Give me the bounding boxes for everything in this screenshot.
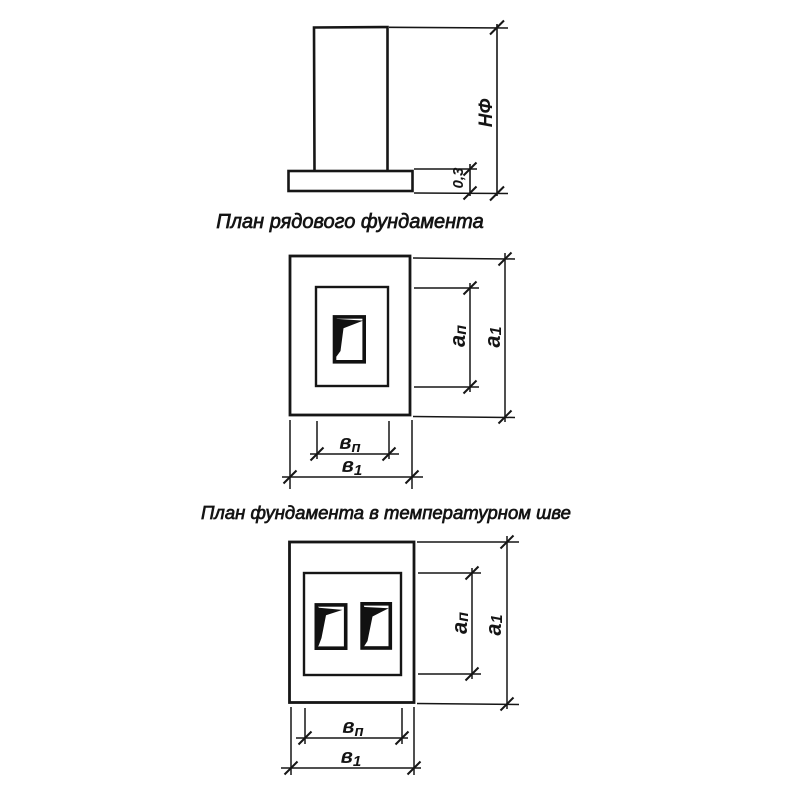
svg-text:План рядового фундамента: План рядового фундамента [216,211,484,233]
svg-text:0,3: 0,3 [450,167,467,189]
svg-text:НФ: НФ [476,99,497,128]
svg-text:План фундамента в температурно: План фундамента в температурном шве [201,502,571,523]
